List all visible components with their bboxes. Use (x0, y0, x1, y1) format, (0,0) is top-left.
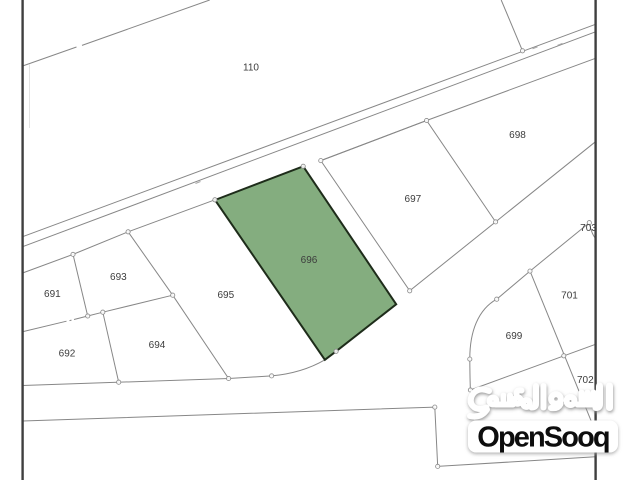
svg-text:699: 699 (506, 331, 523, 342)
svg-text:691: 691 (44, 289, 61, 300)
svg-text:OpenSooq: OpenSooq (477, 422, 609, 454)
svg-text:702: 702 (577, 375, 594, 386)
svg-text:694: 694 (149, 340, 166, 351)
svg-text:110: 110 (243, 63, 259, 74)
svg-text:696: 696 (301, 255, 318, 266)
svg-text:695: 695 (217, 290, 234, 301)
svg-text:692: 692 (59, 349, 76, 360)
svg-text:698: 698 (509, 130, 526, 141)
svg-text:693: 693 (110, 272, 127, 283)
svg-text:703: 703 (580, 223, 597, 234)
svg-text:701: 701 (561, 291, 578, 302)
svg-text:697: 697 (405, 194, 422, 205)
